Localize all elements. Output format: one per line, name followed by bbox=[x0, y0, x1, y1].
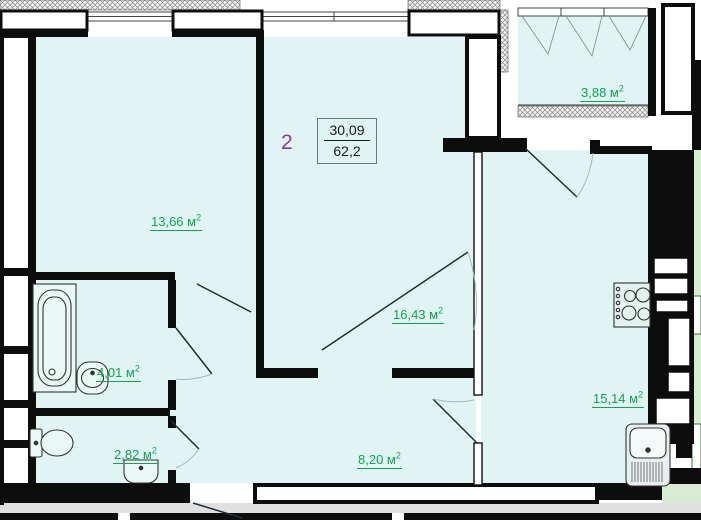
floor-plan: 13,66 м2 16,43 м2 3,88 м2 15,14 м2 4,01 … bbox=[0, 0, 701, 520]
floor-plan-drawing bbox=[0, 0, 701, 520]
hallway-area-label: 8,20 м2 bbox=[357, 453, 402, 469]
living-room-window bbox=[88, 12, 172, 21]
bedroom-window bbox=[262, 12, 408, 21]
unit-area-lower: 62,2 bbox=[318, 141, 376, 163]
unit-area-upper: 30,09 bbox=[324, 119, 370, 141]
stove bbox=[614, 283, 650, 327]
kitchen-sink bbox=[626, 424, 670, 486]
bedroom-area-label: 16,43 м2 bbox=[392, 308, 444, 324]
bathroom-area-label: 4,01 м2 bbox=[96, 366, 141, 382]
kitchen-area-label: 15,14 м2 bbox=[592, 392, 644, 408]
balcony-area-label: 3,88 м2 bbox=[580, 86, 625, 102]
bathtub bbox=[33, 284, 76, 392]
wc-area-label: 2,82 м2 bbox=[113, 448, 158, 464]
unit-area-box: 30,09 62,2 bbox=[317, 118, 377, 164]
toilet bbox=[30, 429, 73, 457]
unit-number: 2 bbox=[281, 131, 293, 155]
living-room-area-label: 13,66 м2 bbox=[150, 215, 202, 231]
